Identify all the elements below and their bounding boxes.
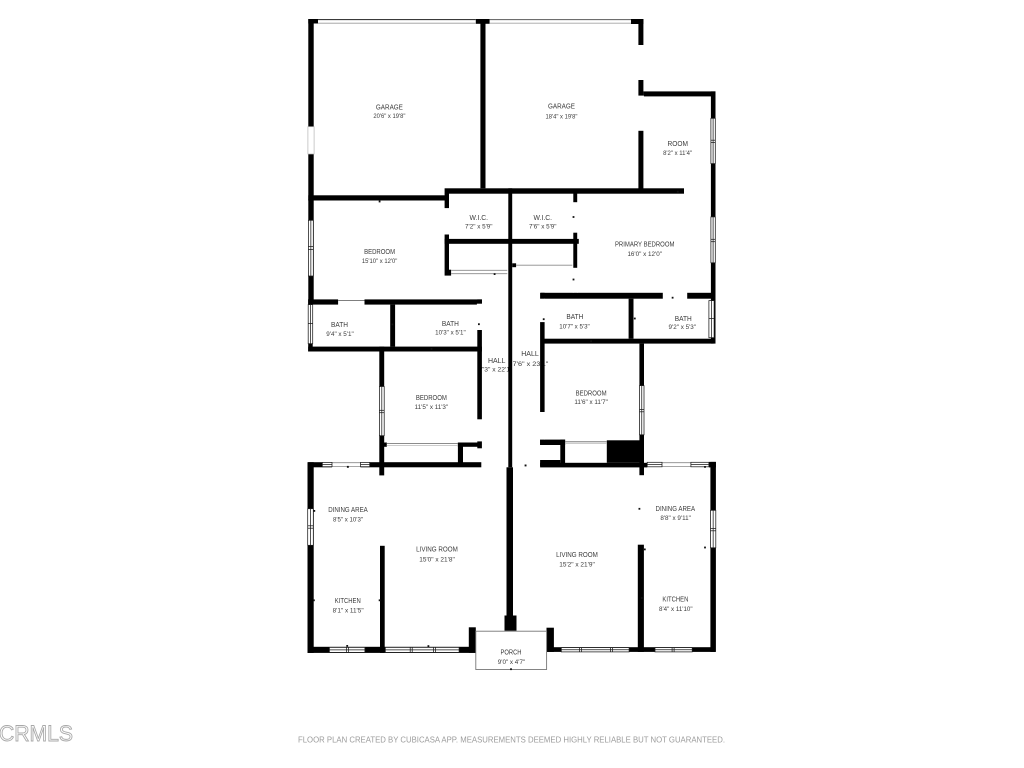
svg-text:8'4" x 11'10": 8'4" x 11'10" xyxy=(659,606,693,613)
svg-text:LIVING ROOM: LIVING ROOM xyxy=(556,552,598,559)
svg-text:BEDROOM: BEDROOM xyxy=(576,390,607,397)
svg-text:W.I.C.: W.I.C. xyxy=(470,215,489,222)
svg-text:W.I.C.: W.I.C. xyxy=(534,215,553,222)
svg-text:DINING AREA: DINING AREA xyxy=(656,506,696,513)
svg-text:10'3" x 5'1": 10'3" x 5'1" xyxy=(435,330,466,337)
svg-text:BATH: BATH xyxy=(442,321,459,328)
svg-text:BATH: BATH xyxy=(331,322,348,329)
svg-text:BEDROOM: BEDROOM xyxy=(364,249,395,256)
svg-text:11'6" x 11'7": 11'6" x 11'7" xyxy=(574,399,608,406)
svg-text:KITCHEN: KITCHEN xyxy=(662,597,688,604)
svg-text:20'6" x 19'8": 20'6" x 19'8" xyxy=(373,113,406,120)
svg-text:7'6" x 5'9": 7'6" x 5'9" xyxy=(529,223,557,230)
svg-text:BATH: BATH xyxy=(675,316,692,323)
svg-text:9'2" x 5'3": 9'2" x 5'3" xyxy=(669,324,697,331)
svg-text:GARAGE: GARAGE xyxy=(376,105,403,112)
svg-text:HALL: HALL xyxy=(488,358,506,365)
svg-text:18'4" x 19'8": 18'4" x 19'8" xyxy=(546,114,579,121)
svg-text:8'1" x 11'5": 8'1" x 11'5" xyxy=(333,608,365,615)
svg-text:8'2" x 11'4": 8'2" x 11'4" xyxy=(663,150,693,157)
svg-text:KITCHEN: KITCHEN xyxy=(335,598,361,605)
svg-text:7'2" x 5'9": 7'2" x 5'9" xyxy=(465,224,493,231)
svg-text:FLOOR PLAN CREATED BY CUBICASA: FLOOR PLAN CREATED BY CUBICASA APP. MEAS… xyxy=(298,736,725,745)
svg-text:GARAGE: GARAGE xyxy=(548,103,575,110)
svg-text:BATH: BATH xyxy=(566,314,583,321)
svg-text:11'5" x 11'3": 11'5" x 11'3" xyxy=(415,404,449,411)
svg-text:HALL: HALL xyxy=(521,351,539,358)
svg-text:8'5" x 10'3": 8'5" x 10'3" xyxy=(333,517,364,524)
svg-text:DINING AREA: DINING AREA xyxy=(328,507,368,514)
svg-text:8'8" x 9'11": 8'8" x 9'11" xyxy=(660,515,691,522)
svg-text:LIVING ROOM: LIVING ROOM xyxy=(416,547,458,554)
svg-text:BEDROOM: BEDROOM xyxy=(416,395,447,402)
svg-text:CRMLS: CRMLS xyxy=(0,721,73,746)
svg-text:16'0" x 12'0": 16'0" x 12'0" xyxy=(627,251,662,258)
svg-text:15'2" x 21'9": 15'2" x 21'9" xyxy=(559,562,595,569)
svg-text:15'0" x 21'8": 15'0" x 21'8" xyxy=(419,557,455,564)
svg-text:PRIMARY BEDROOM: PRIMARY BEDROOM xyxy=(615,242,675,249)
svg-text:15'10" x 12'0": 15'10" x 12'0" xyxy=(362,258,398,265)
svg-text:ROOM: ROOM xyxy=(668,141,689,148)
svg-text:10'7" x 5'3": 10'7" x 5'3" xyxy=(559,324,590,331)
svg-text:7'3" x 22'1": 7'3" x 22'1" xyxy=(479,366,513,373)
svg-text:9'4" x 5'1": 9'4" x 5'1" xyxy=(326,331,354,338)
svg-text:9'0" x 4'7": 9'0" x 4'7" xyxy=(498,659,526,666)
svg-text:PORCH: PORCH xyxy=(501,650,522,657)
